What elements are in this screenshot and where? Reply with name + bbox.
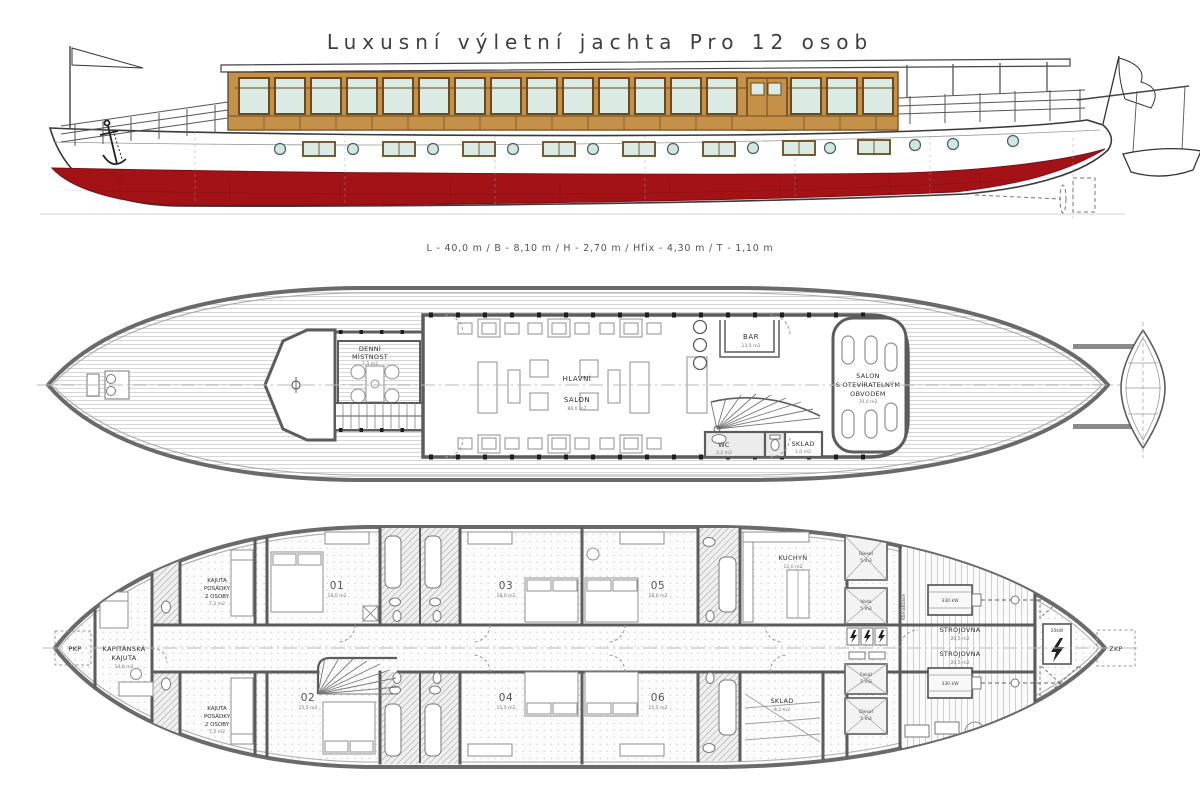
main-deck-plan: DENNÍ MÍSTNOST 7,3 m2 HLAVNÍ SALON 86,0 … [25,268,1175,498]
denni-mistnost-label: DENNÍ [359,344,381,353]
stern-flag-icon [1119,58,1155,108]
sofa [468,532,512,544]
toilet-icon [162,678,171,690]
tank-diesel-bottom-label: Diesel [859,709,873,715]
stern-railing [898,89,1085,124]
generator-label: 20kW [1051,628,1064,634]
kapitanska-label2: KAJUTA [112,654,137,662]
strojovna-bottom-label: STROJOVNA [939,650,980,658]
chair [587,548,599,560]
salon-obvodem-label3: OBVODEM [850,390,886,398]
sklad-label: SKLAD [791,440,814,448]
deckhouse [221,59,1070,130]
sofa [620,532,664,544]
salon-furniture-top [458,319,661,337]
cabin-05-area: 18,0 m2 [648,593,667,599]
strojovna-bottom-area: 20,5 m2 [950,660,969,666]
cabin-04-area: 15,5 m2 [496,705,515,711]
cabin-01-area: 18,0 m2 [327,593,346,599]
tank-voda-label: Voda [860,599,871,605]
tank-diesel-top-vol: 5 m3 [860,558,872,564]
crew-top-label2: POSÁDKY [204,585,231,592]
sklad-lower-area: 9,2 m2 [774,707,790,713]
engine-top-label: 330 kW [941,598,959,604]
hull-side [50,120,1111,220]
roof-canopy [221,59,1070,72]
bathtub-icon [425,704,441,756]
pkp-label: PKP [68,645,81,653]
deckhouse-windows [235,78,895,114]
bathtub-icon [385,536,401,588]
hlavni-salon-label: HLAVNÍ [563,374,592,383]
sklad-lower-label: SKLAD [770,697,793,705]
side-elevation-view [25,28,1197,240]
cabin-02-label: 02 [301,692,316,704]
dimensions-text: L - 40,0 m / B - 8,10 m / H - 2,70 m / H… [0,243,1200,254]
deckhouse-lower-panels [228,116,898,130]
crew-bottom-label2: POSÁDKY [204,713,231,720]
denni-mistnost-label2: MÍSTNOST [352,352,388,361]
kapitanska-area: 14,6 m2 [114,664,133,670]
crew-top-label3: 2 OSOBY [205,594,230,600]
cabin-05-label: 05 [651,580,666,592]
sink-icon [162,546,171,555]
zkp-label: ZKP [1109,645,1123,653]
chair [131,669,142,680]
cabin-04-label: 04 [499,692,514,704]
toilet-icon [770,435,780,451]
tank-fekal-vol: 5 m3 [860,679,872,685]
salon-obvodem-label: SALON [856,372,880,380]
hlavni-salon-label2: SALON [564,396,590,404]
sink-icon [162,740,171,749]
tank-voda-vol: 5 m3 [860,606,872,612]
electrical-boxes [847,628,887,645]
desk [119,682,153,696]
wc-area: 3,2 m2 [716,450,732,456]
salon-obvodem-label2: S OTEVÍRATELNÝM [836,380,901,389]
sofa [468,744,512,756]
kuchyn-area: 12,0 m2 [783,564,802,570]
crew-top-label: KAJUTA [207,578,227,584]
toilet-icon [162,601,171,613]
kuchyn-label: KUCHYŇ [779,553,808,562]
crew-bottom-label3: 2 OSOBY [205,722,230,728]
bathtub-icon [719,557,736,612]
bow-pennant-flag-icon [72,48,143,68]
engine-bottom-label: 330 kW [941,681,959,687]
klimatizace-label: Klimatizace [901,594,907,620]
tank-diesel-top-label: Diesel [859,551,873,557]
crew-bottom-label: KAJUTA [207,706,227,712]
wc-label: WC [718,441,730,449]
sofa [325,532,369,544]
tank-diesel-bottom-vol: 5 m3 [860,716,872,722]
sklad-area: 1,0 m2 [795,449,811,455]
cabin-03-area: 18,0 m2 [496,593,515,599]
salon-obvodem-area: 70,0 m2 [858,399,877,405]
crew-top-area: 7,2 m2 [209,601,225,607]
bathtub-icon [425,536,441,588]
cabin-03-label: 03 [499,580,514,592]
strojovna-top-area: 20,5 m2 [950,636,969,642]
lower-deck-plan: PKP ZKP KAPITÁNSKÁ KAJUTA 14,6 m2 KAJUTA… [25,512,1175,777]
cabin-06-label: 06 [651,692,666,704]
salon-furniture-bottom [458,435,661,453]
engine-room-floor [902,542,1035,750]
crew-bottom-area: 7,2 m2 [209,729,225,735]
bar-label: BAR [743,333,759,341]
hlavni-salon-area: 86,0 m2 [567,406,586,412]
dinghy-side [1123,149,1200,176]
cabin-06-area: 15,5 m2 [648,705,667,711]
kapitanska-label: KAPITÁNSKÁ [103,644,146,653]
tanks-column [845,536,887,734]
bar-area: 13,5 m2 [741,343,760,349]
bathtub-icon [719,680,736,735]
yacht-blueprint: Luxusní výletní jachta Pro 12 osob [0,0,1200,792]
stern-flagstaff [1103,56,1119,124]
bathtub-icon [385,704,401,756]
strojovna-top-label: STROJOVNA [939,626,980,634]
forward-staircase [335,403,423,430]
denni-mistnost-area: 7,3 m2 [362,361,378,367]
wardrobe [363,606,378,621]
cabin-02-area: 15,5 m2 [298,705,317,711]
tank-fekal-label: Fekál [860,671,872,678]
cabin-01-label: 01 [330,580,345,592]
sofa [620,744,664,756]
